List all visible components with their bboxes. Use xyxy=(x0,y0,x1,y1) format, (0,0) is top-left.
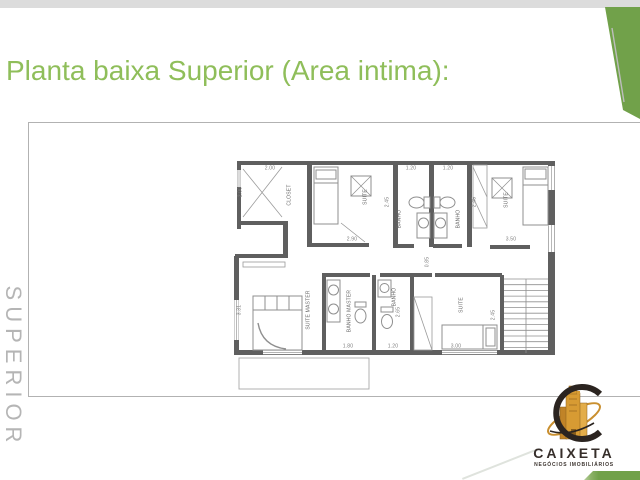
green-triangle xyxy=(605,7,640,119)
page-title: Planta baixa Superior (Area intima): xyxy=(6,55,606,87)
dim-label: 2.45 xyxy=(473,197,478,208)
balcony xyxy=(239,358,369,389)
dim-label: 1.20 xyxy=(388,345,399,350)
room-label: SUITE xyxy=(364,189,369,205)
dim-label: 2.45 xyxy=(492,310,497,321)
room-label: SUITE MASTER xyxy=(307,290,312,329)
dim-label: 3.00 xyxy=(451,345,462,350)
room-label: BANHO MASTER xyxy=(348,290,353,332)
floor-plan-drawing xyxy=(228,157,560,399)
room-label: SUITE xyxy=(460,297,465,313)
room-label: BANHO xyxy=(393,288,398,307)
logo-name: CAIXETA xyxy=(524,445,624,461)
side-label: SUPERIOR xyxy=(0,286,26,449)
dim-label: 1.20 xyxy=(406,167,417,172)
room-label: CLOSET xyxy=(288,184,293,205)
dim-label: 1.20 xyxy=(443,167,454,172)
dim-label: 2.45 xyxy=(386,197,391,208)
dim-label: 2.90 xyxy=(347,238,358,243)
dim-label: 2.00 xyxy=(239,187,244,198)
company-logo: CAIXETA NEGÓCIOS IMOBILIÁRIOS xyxy=(524,381,624,476)
room-label: BANHO xyxy=(398,210,403,229)
top-strip xyxy=(0,0,640,8)
dim-label: 3.50 xyxy=(506,238,517,243)
stairs xyxy=(504,279,548,353)
logo-mark xyxy=(530,381,622,447)
dim-label: 0.85 xyxy=(426,257,431,268)
slide: Planta baixa Superior (Area intima): SUP… xyxy=(0,0,640,480)
logo-tagline: NEGÓCIOS IMOBILIÁRIOS xyxy=(524,462,624,468)
room-label: BANHO xyxy=(457,210,462,229)
dim-label: 3.31 xyxy=(238,305,243,316)
dim-label: 1.80 xyxy=(343,345,354,350)
room-label: SUITE xyxy=(505,192,510,208)
dim-label: 2.65 xyxy=(397,307,402,318)
floor-plan: CLOSET SUITE BANHO BANHO SUITE SUITE MAS… xyxy=(228,157,560,399)
dim-label: 2.00 xyxy=(265,167,276,172)
green-bottom-bar xyxy=(584,471,640,480)
